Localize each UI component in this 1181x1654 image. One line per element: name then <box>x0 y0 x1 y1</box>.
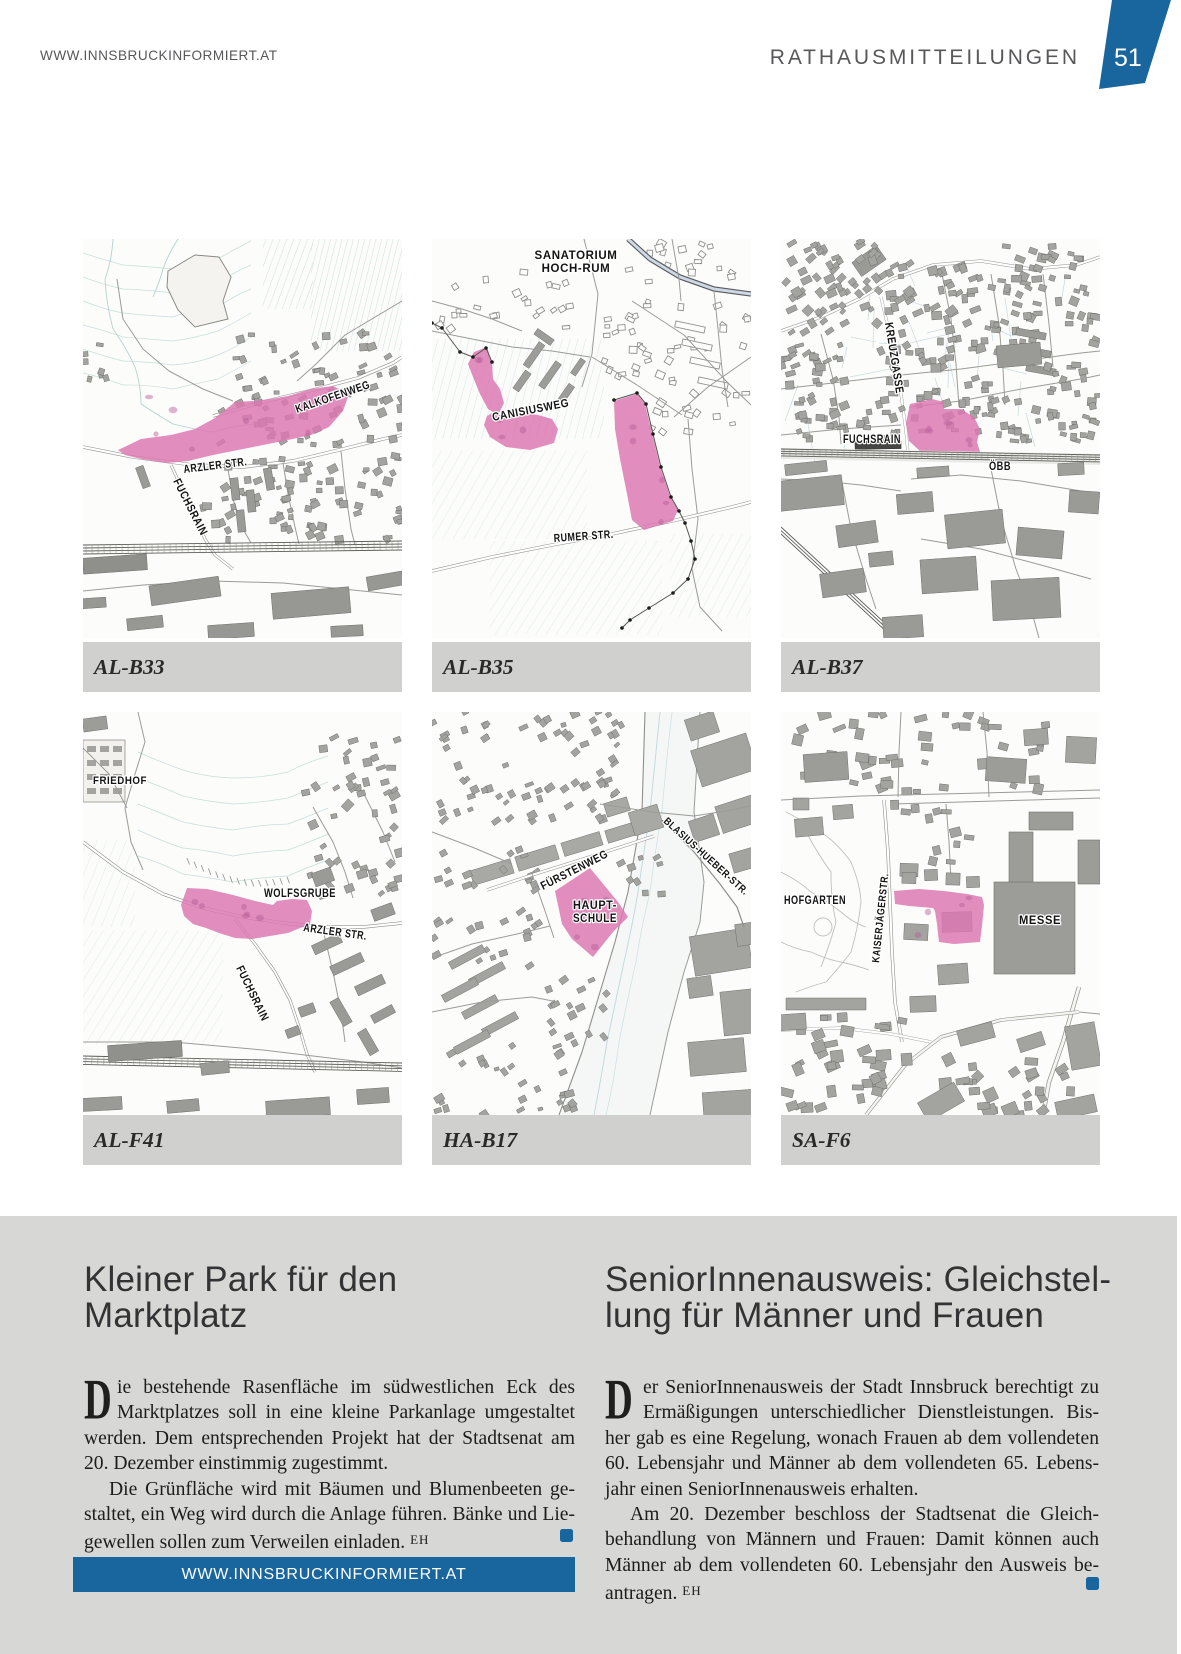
svg-text:RUMER STR.: RUMER STR. <box>553 529 614 545</box>
svg-text:WOLFSGRUBE: WOLFSGRUBE <box>264 888 336 900</box>
svg-text:FUCHSRAIN: FUCHSRAIN <box>233 964 270 1023</box>
svg-text:ÖBB: ÖBB <box>989 460 1011 473</box>
svg-text:FRIEDHOF: FRIEDHOF <box>93 775 147 787</box>
svg-text:FUCHSRAIN: FUCHSRAIN <box>843 434 901 446</box>
svg-text:51: 51 <box>1114 44 1142 72</box>
svg-text:HAUPT-: HAUPT- <box>573 900 617 912</box>
svg-text:MESSE: MESSE <box>1019 915 1061 927</box>
svg-text:SANATORIUM: SANATORIUM <box>535 250 618 262</box>
svg-text:HOCH-RUM: HOCH-RUM <box>542 263 611 275</box>
svg-text:HOFGARTEN: HOFGARTEN <box>784 895 846 907</box>
svg-text:KAISERJÄGERSTR.: KAISERJÄGERSTR. <box>869 872 891 963</box>
svg-text:SCHULE: SCHULE <box>573 913 617 925</box>
